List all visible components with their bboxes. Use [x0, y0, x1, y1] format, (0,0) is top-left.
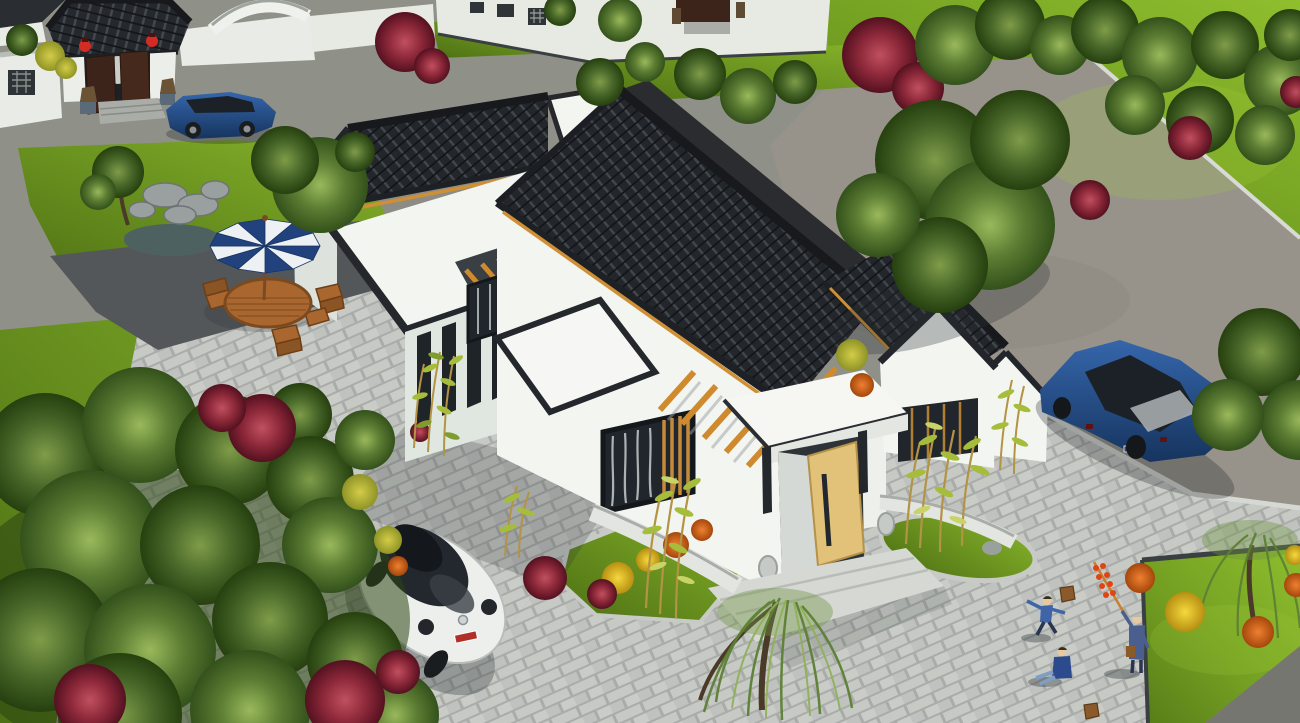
stone-lion-icon: [160, 78, 176, 105]
taillight: [1160, 437, 1167, 442]
wheel: [1126, 435, 1146, 459]
neighbor-doors: [676, 0, 730, 22]
forest-bottom-left: [0, 367, 439, 723]
chartreuse-bush: [342, 474, 378, 510]
orange-flower-bush: [850, 373, 874, 397]
door-side-post: [858, 430, 868, 494]
stone-lion-icon: [672, 8, 681, 24]
umbrella-finial: [262, 215, 268, 221]
garden-tree: [80, 174, 116, 210]
red-shrub: [198, 384, 246, 432]
neighbor-steps: [684, 22, 730, 34]
red-shrub: [1168, 116, 1212, 160]
purple-leaf-tree: [414, 48, 450, 84]
pond-water: [124, 224, 220, 252]
entry-door: [808, 442, 864, 566]
gate-tree: [6, 24, 38, 56]
rendering-stage: [0, 0, 1300, 723]
vw-badge-icon: [459, 616, 468, 625]
right-wing-window: [898, 398, 978, 462]
red-shrub: [1070, 180, 1110, 220]
orange-flower-bush: [691, 519, 713, 541]
lantern-cap: [82, 38, 88, 42]
patio-table: [225, 279, 311, 327]
moss-rock: [55, 57, 77, 79]
yellow-flower-bush: [1165, 592, 1205, 632]
red-shrub: [523, 556, 567, 600]
taillight: [1086, 424, 1093, 429]
scene-rendering: [0, 0, 1300, 723]
island-shrub: [335, 132, 375, 172]
stone-lion-icon: [736, 2, 745, 18]
satchel: [1126, 646, 1135, 657]
robe: [1052, 656, 1072, 679]
orange-flower-bush: [1125, 563, 1155, 593]
hub: [244, 126, 251, 133]
headlight-icon: [481, 599, 497, 615]
person-shadow: [1104, 669, 1140, 679]
lattice-window-icon: [528, 8, 546, 25]
stone-lion-icon: [80, 86, 97, 114]
headlight-icon: [418, 619, 434, 635]
door-side-post: [762, 446, 772, 514]
moss-bush: [836, 339, 868, 371]
island-tree: [251, 126, 319, 194]
lattice-window-icon: [497, 4, 514, 17]
orange-flower-bush: [388, 556, 408, 576]
gate-roof-tiles: [48, 0, 190, 58]
stone-drum-icon: [878, 513, 894, 535]
stool: [1084, 703, 1099, 719]
hub: [190, 127, 197, 134]
lattice-window-icon: [470, 2, 484, 13]
orange-flower-bush: [1242, 616, 1274, 648]
red-shrub: [376, 650, 420, 694]
chartreuse-bush: [374, 526, 402, 554]
leg: [1132, 660, 1133, 673]
red-shrub: [587, 579, 617, 609]
stool: [1060, 586, 1075, 602]
wheel: [1053, 397, 1071, 419]
lantern-cap: [149, 33, 155, 37]
person-shadow: [1021, 634, 1051, 643]
garden-stone: [982, 541, 1002, 555]
